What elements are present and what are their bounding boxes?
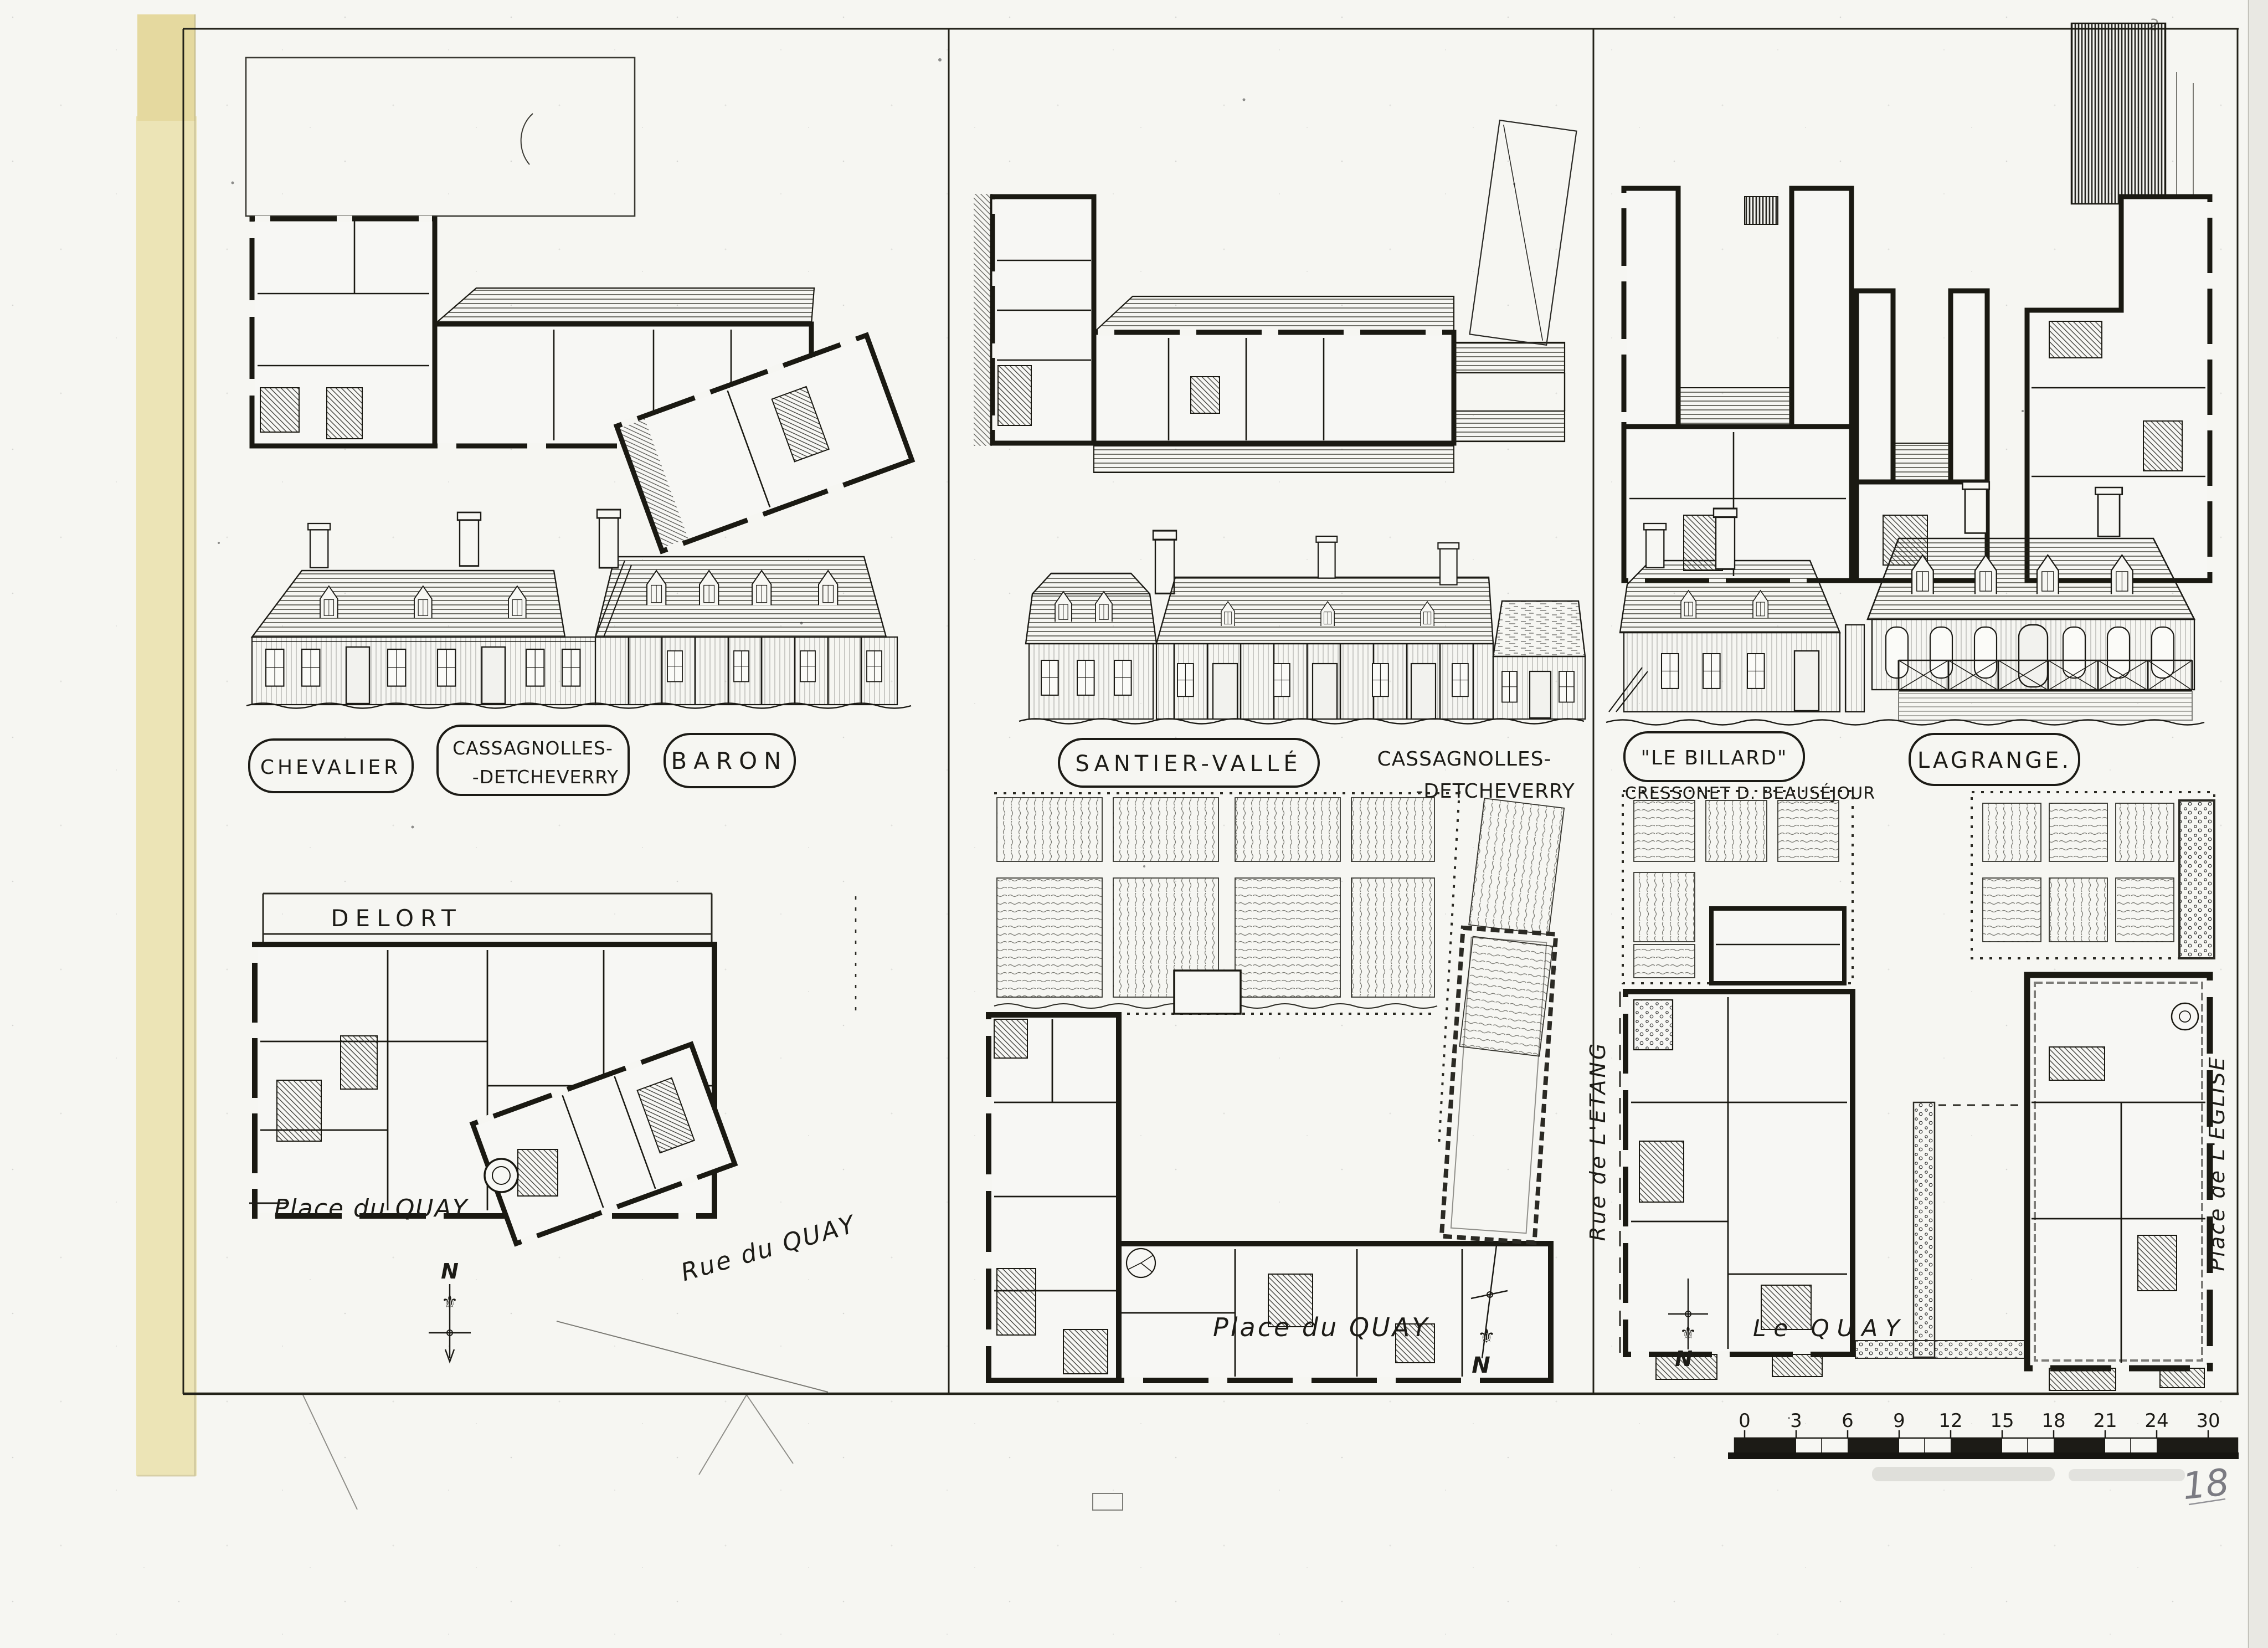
label-place-du-quay-middle: Place du QUAY bbox=[1213, 1312, 1429, 1342]
fleur-de-lis-icon: ⚜ bbox=[1680, 1322, 1696, 1344]
page-number-text: 18 bbox=[2180, 1461, 2231, 1508]
label-delort: DELORT bbox=[331, 905, 462, 932]
label-baron: BARON bbox=[671, 747, 788, 774]
label-lagrange: LAGRANGE. bbox=[1917, 748, 2071, 773]
scale-tick-15: 15 bbox=[1990, 1410, 2014, 1432]
scale-tick-9: 9 bbox=[1893, 1410, 1905, 1432]
scale-tick-18: 18 bbox=[2041, 1410, 2065, 1432]
label-chevalier: CHEVALIER bbox=[260, 756, 401, 779]
north-letter: N bbox=[1675, 1347, 1693, 1371]
scale-tick-12: 12 bbox=[1938, 1410, 1962, 1432]
scanned-architectural-sheet: CHEVALIER CASSAGNOLLES- -DETCHEVERRY BAR… bbox=[0, 0, 2268, 1648]
label-le-quay: Le QUAY bbox=[1753, 1315, 1907, 1342]
label-santier-valle: SANTIER-VALLÉ bbox=[1075, 750, 1302, 777]
yellow-tape-strip bbox=[136, 14, 197, 1476]
label-place-de-leglise: Place de L'EGLISE bbox=[2205, 1055, 2229, 1271]
label-cassagnolles-1: CASSAGNOLLES- bbox=[452, 737, 613, 759]
scale-tick-0: 0 bbox=[1739, 1410, 1751, 1432]
scale-tick-6: 6 bbox=[1842, 1410, 1854, 1432]
north-letter: N bbox=[441, 1259, 459, 1284]
label-place-du-quay-left: Place du QUAY bbox=[274, 1194, 469, 1223]
label-rue-de-letang: Rue de L'ETANG bbox=[1586, 1041, 1610, 1241]
north-letter: N bbox=[1472, 1353, 1490, 1378]
scale-tick-21: 21 bbox=[2093, 1410, 2117, 1432]
fleur-de-lis-icon: ⚜ bbox=[1478, 1325, 1495, 1348]
page-number: 18 bbox=[2180, 1461, 2231, 1508]
label-le-billard: "LE BILLARD" bbox=[1641, 747, 1788, 769]
scale-tick-3: 3 bbox=[1790, 1410, 1802, 1432]
well-symbol bbox=[485, 1159, 518, 1192]
sheet-drawing: CHEVALIER CASSAGNOLLES- -DETCHEVERRY BAR… bbox=[0, 0, 2268, 1648]
scale-tick-30: 30 bbox=[2196, 1410, 2220, 1432]
label-detcheverry-1: -DETCHEVERRY bbox=[472, 766, 619, 788]
label-cassagnolles-2: CASSAGNOLLES- bbox=[1377, 748, 1552, 771]
scale-tick-24: 24 bbox=[2144, 1410, 2168, 1432]
